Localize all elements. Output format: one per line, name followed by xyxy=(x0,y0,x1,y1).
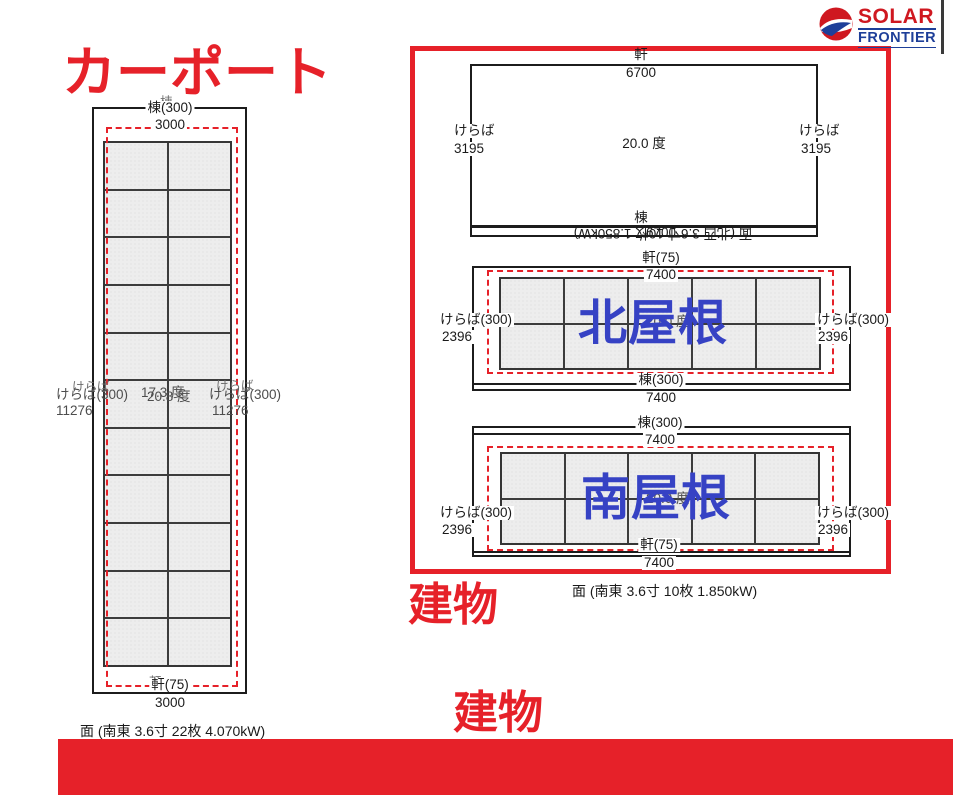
south-roof-gable-left-dim: 2396 xyxy=(440,523,474,537)
carport-gable-right-label: けらば(300) xyxy=(209,388,281,402)
building-box-label: 建物 xyxy=(408,582,498,627)
south-roof-ridge-label: 棟(300) xyxy=(635,416,684,430)
logo-frontier-text: FRONTIER xyxy=(858,28,936,48)
upper-roof-gable-right-label: けらば xyxy=(797,124,842,138)
south-roof-eave-label: 軒(75) xyxy=(638,538,680,552)
carport-ridge-dim: 3000 xyxy=(153,118,187,132)
carport-ridge-label: 棟(300) xyxy=(145,101,194,115)
north-roof-eave-label: 軒(75) xyxy=(640,251,682,265)
logo-wordmark: SOLAR FRONTIER xyxy=(858,6,936,48)
building-lower-label: 建物 xyxy=(453,690,543,735)
north-roof-ridge-dim: 7400 xyxy=(644,391,678,405)
south-roof-gable-right-label: けらば(300) xyxy=(815,506,891,520)
carport-caption: 面 (南東 3.6寸 22枚 4.070kW) xyxy=(80,721,265,741)
upper-roof-ridge-label: 棟 xyxy=(632,211,650,225)
upper-roof-eave-label: 軒 xyxy=(634,48,648,62)
solar-frontier-logo: SOLAR FRONTIER xyxy=(818,6,950,48)
north-roof-eave-dim: 7400 xyxy=(644,268,678,282)
upper-roof-gable-left-dim: 3195 xyxy=(452,142,486,156)
logo-solar-text: SOLAR xyxy=(858,6,936,27)
logo-globe-icon xyxy=(818,6,854,47)
window-edge-line xyxy=(941,0,944,54)
south-roof-ridge-dim: 7400 xyxy=(643,433,677,447)
north-roof-name-overlay: 北屋根 xyxy=(578,300,728,349)
footer-red-bar xyxy=(58,739,953,795)
north-roof-ridge-label: 棟(300) xyxy=(636,373,685,387)
south-roof-caption: 面 (南東 3.6寸 10枚 1.850kW) xyxy=(572,581,757,601)
carport-title: カーポート xyxy=(62,46,332,100)
north-roof-gable-left-dim: 2396 xyxy=(440,330,474,344)
carport-gable-right-dim: 11276 xyxy=(212,404,249,418)
upper-roof-ridge-dim: 6700 xyxy=(646,226,676,240)
north-roof-gable-left-label: けらば(300) xyxy=(438,313,514,327)
carport-eave-label: 軒(75) xyxy=(149,678,191,692)
north-roof-gable-right-label: けらば(300) xyxy=(815,313,891,327)
south-roof-gable-right-dim: 2396 xyxy=(816,523,850,537)
south-roof-eave-dim: 7400 xyxy=(642,556,676,570)
south-roof-gable-left-label: けらば(300) xyxy=(438,506,514,520)
carport-eave-dim: 3000 xyxy=(153,696,187,710)
carport-angle-label-b: 20.8 度 xyxy=(147,390,191,404)
solar-layout-page: SOLAR FRONTIER カーポート 棟 棟(300) 3000 けらば け… xyxy=(0,0,953,799)
upper-roof-eave-dim: 6700 xyxy=(624,66,658,80)
upper-roof-gable-left-label: けらば xyxy=(452,124,497,138)
upper-roof-angle-label: 20.0 度 xyxy=(622,137,666,151)
carport-gable-left-label: けらば(300) xyxy=(56,388,128,402)
upper-roof-gable-right-dim: 3195 xyxy=(799,142,833,156)
north-roof-gable-right-dim: 2396 xyxy=(816,330,850,344)
carport-gable-left-dim: 11276 xyxy=(56,404,93,418)
south-roof-name-overlay: 南屋根 xyxy=(581,475,731,524)
